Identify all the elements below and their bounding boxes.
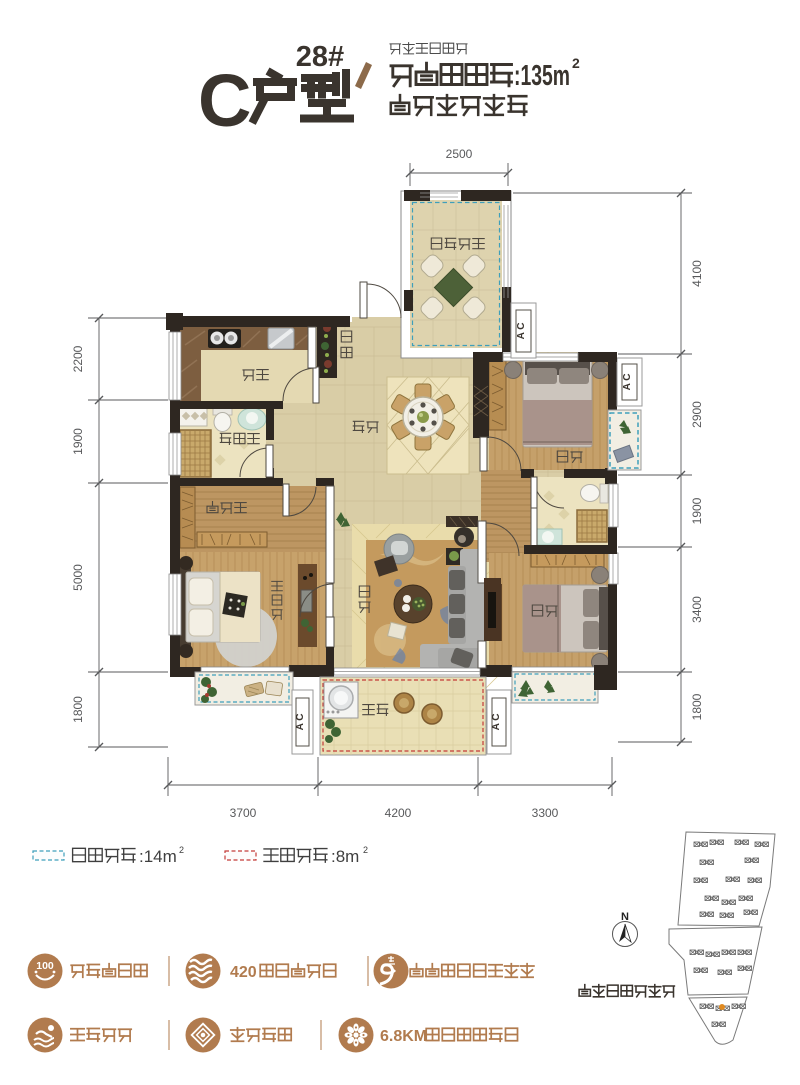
svg-text:4200: 4200 — [385, 806, 412, 820]
svg-text::8m: :8m — [331, 847, 359, 866]
svg-text:1800: 1800 — [690, 693, 704, 720]
svg-text:A C: A C — [622, 374, 633, 391]
svg-text:2: 2 — [572, 55, 580, 71]
svg-text:2500: 2500 — [446, 147, 473, 161]
svg-text:3400: 3400 — [690, 596, 704, 623]
svg-text:2900: 2900 — [690, 401, 704, 428]
svg-text:5000: 5000 — [71, 564, 85, 591]
svg-text:1900: 1900 — [71, 428, 85, 455]
svg-text:4100: 4100 — [690, 260, 704, 287]
svg-text:2: 2 — [179, 845, 184, 855]
svg-text:28#: 28# — [296, 41, 344, 73]
svg-text:1900: 1900 — [690, 497, 704, 524]
svg-text::14m: :14m — [139, 847, 177, 866]
svg-text:3700: 3700 — [230, 806, 257, 820]
svg-text:420: 420 — [230, 964, 257, 981]
svg-text:6.8KM: 6.8KM — [380, 1028, 427, 1045]
svg-text:N: N — [621, 911, 629, 923]
svg-text:A C: A C — [516, 323, 527, 340]
svg-text:A C: A C — [295, 714, 306, 731]
svg-text:A C: A C — [491, 714, 502, 731]
svg-text::135m: :135m — [514, 60, 570, 92]
svg-text:2: 2 — [363, 845, 368, 855]
svg-text:1800: 1800 — [71, 696, 85, 723]
svg-text:C: C — [198, 59, 251, 142]
svg-text:3300: 3300 — [532, 806, 559, 820]
svg-text:2200: 2200 — [71, 345, 85, 372]
svg-text:100: 100 — [36, 960, 54, 972]
